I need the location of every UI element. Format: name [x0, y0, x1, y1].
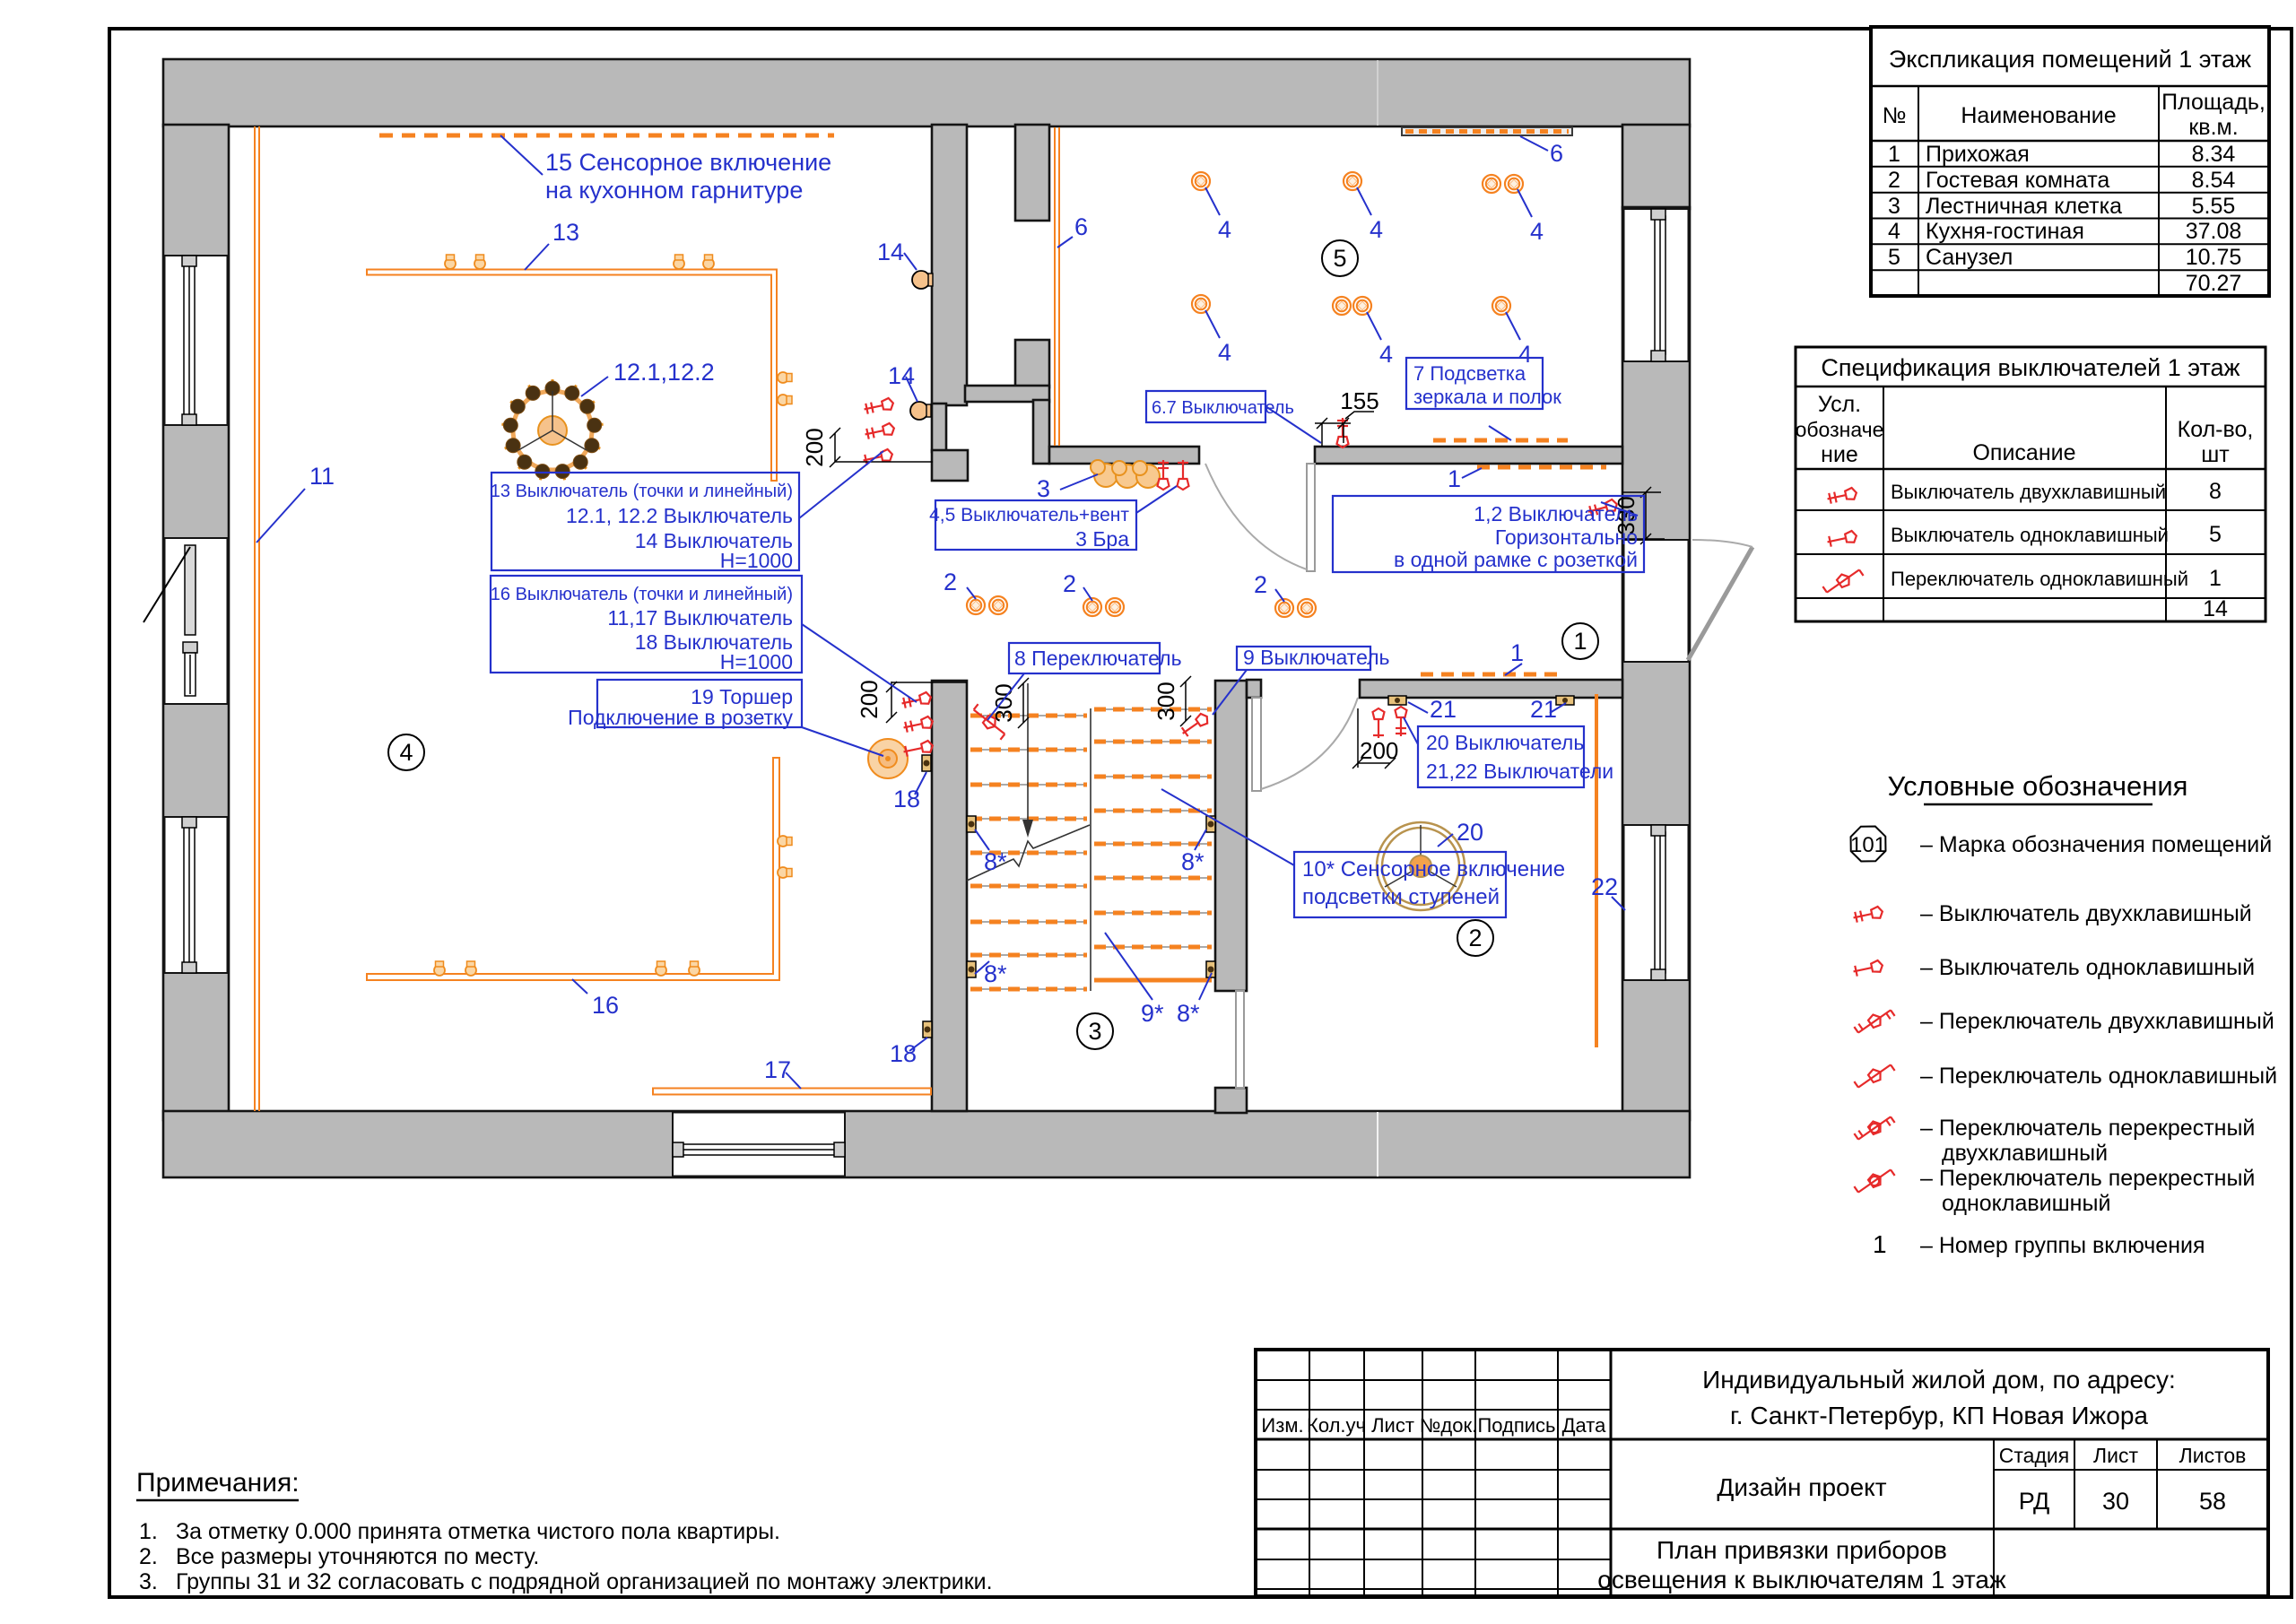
svg-text:3.: 3.: [139, 1569, 158, 1594]
svg-text:200: 200: [1360, 737, 1398, 764]
svg-text:101: 101: [1850, 833, 1886, 857]
svg-text:№: №: [1883, 103, 1907, 128]
svg-text:4: 4: [1370, 216, 1383, 243]
svg-text:17: 17: [764, 1056, 791, 1083]
svg-text:Санузел: Санузел: [1926, 245, 2013, 270]
svg-text:шт: шт: [2201, 442, 2230, 467]
svg-text:13: 13: [552, 219, 579, 246]
svg-text:1,2 Выключатель: 1,2 Выключатель: [1474, 502, 1638, 525]
svg-text:– Номер группы включения: – Номер группы включения: [1920, 1233, 2205, 1258]
svg-text:7 Подсветка: 7 Подсветка: [1413, 362, 1526, 385]
svg-text:2: 2: [944, 569, 957, 595]
svg-text:11,17 Выключатель: 11,17 Выключатель: [607, 606, 793, 630]
svg-text:12.1, 12.2 Выключатель: 12.1, 12.2 Выключатель: [566, 504, 793, 527]
svg-text:18: 18: [893, 786, 920, 812]
svg-text:21,22 Выключатели: 21,22 Выключатели: [1426, 760, 1613, 783]
svg-text:4: 4: [1530, 218, 1544, 245]
svg-text:70.27: 70.27: [2186, 271, 2242, 296]
svg-text:300: 300: [1152, 682, 1179, 720]
svg-text:Подключение в розетку: Подключение в розетку: [568, 706, 793, 729]
svg-text:– Переключатель перекрестный: – Переключатель перекрестный: [1920, 1116, 2255, 1141]
svg-text:2: 2: [1888, 168, 1900, 193]
svg-text:Кухня-гостиная: Кухня-гостиная: [1926, 219, 2084, 244]
svg-text:H=1000: H=1000: [720, 650, 793, 673]
svg-text:1: 1: [2209, 566, 2222, 591]
svg-text:9*: 9*: [1141, 1000, 1164, 1027]
svg-text:5.55: 5.55: [2192, 194, 2236, 219]
svg-text:Наименование: Наименование: [1961, 103, 2116, 128]
svg-text:на кухонном гарнитуре: на кухонном гарнитуре: [545, 177, 803, 204]
svg-text:2.: 2.: [139, 1544, 158, 1569]
svg-text:4: 4: [1218, 339, 1231, 366]
svg-text:Лист: Лист: [2093, 1444, 2138, 1467]
svg-text:18: 18: [890, 1040, 917, 1067]
svg-text:1: 1: [1888, 142, 1900, 167]
svg-text:– Переключатель перекрестный: – Переключатель перекрестный: [1920, 1166, 2255, 1191]
svg-text:8.34: 8.34: [2192, 142, 2236, 167]
svg-text:Экспликация помещений 1 этаж: Экспликация помещений 1 этаж: [1889, 46, 2251, 73]
svg-text:6: 6: [1074, 213, 1088, 240]
svg-text:– Переключатель одноклавишный: – Переключатель одноклавишный: [1920, 1064, 2277, 1089]
svg-text:8*: 8*: [1177, 1000, 1200, 1027]
svg-text:ние: ние: [1821, 442, 1858, 467]
svg-text:Описание: Описание: [1972, 440, 2075, 465]
svg-text:1: 1: [1448, 465, 1461, 492]
svg-text:Изм.: Изм.: [1261, 1414, 1303, 1437]
svg-text:20: 20: [1457, 819, 1483, 846]
svg-text:1: 1: [1510, 639, 1524, 666]
svg-text:№док.: №док.: [1420, 1414, 1477, 1437]
svg-text:1.: 1.: [139, 1519, 158, 1544]
svg-text:155: 155: [1340, 387, 1378, 414]
svg-text:зеркала и полок: зеркала и полок: [1413, 386, 1561, 408]
svg-text:3: 3: [1888, 194, 1900, 219]
svg-text:План привязки приборов: План привязки приборов: [1657, 1536, 1947, 1564]
svg-text:Спецификация выключателей 1 эт: Спецификация выключателей 1 этаж: [1821, 354, 2239, 381]
svg-text:14: 14: [877, 239, 904, 265]
svg-text:H=1000: H=1000: [720, 549, 793, 572]
svg-text:Горизонтально: Горизонтально: [1495, 525, 1638, 549]
svg-text:8*: 8*: [984, 960, 1007, 987]
svg-text:14: 14: [2203, 596, 2228, 621]
svg-text:4,5 Выключатель+вент: 4,5 Выключатель+вент: [929, 505, 1129, 525]
svg-text:– Марка обозначения помещений: – Марка обозначения помещений: [1920, 832, 2272, 857]
svg-text:1: 1: [1873, 1230, 1887, 1258]
svg-text:4: 4: [1888, 219, 1900, 244]
svg-text:8: 8: [2209, 479, 2222, 504]
svg-text:Индивидуальный жилой дом, по а: Индивидуальный жилой дом, по адресу:: [1702, 1366, 2176, 1394]
svg-text:2: 2: [1254, 571, 1267, 598]
svg-text:4: 4: [1218, 216, 1231, 243]
svg-text:Листов: Листов: [2179, 1444, 2247, 1467]
svg-text:10* Сенсорное включение: 10* Сенсорное включение: [1302, 857, 1565, 881]
svg-text:22: 22: [1591, 873, 1618, 900]
svg-text:Кол-во,: Кол-во,: [2178, 417, 2254, 442]
svg-text:За отметку 0.000 принята отмет: За отметку 0.000 принята отметка чистого…: [176, 1519, 780, 1544]
svg-text:8*: 8*: [984, 848, 1007, 875]
svg-text:20 Выключатель: 20 Выключатель: [1426, 731, 1584, 754]
svg-text:РД: РД: [2019, 1488, 2050, 1515]
svg-text:37.08: 37.08: [2186, 219, 2242, 244]
svg-text:Прихожая: Прихожая: [1926, 142, 2030, 167]
svg-text:одноклавишный: одноклавишный: [1942, 1191, 2110, 1216]
svg-text:10.75: 10.75: [2186, 245, 2242, 270]
svg-text:30: 30: [2102, 1488, 2129, 1515]
svg-text:– Выключатель двухклавишный: – Выключатель двухклавишный: [1920, 901, 2252, 926]
svg-text:3: 3: [1088, 1018, 1101, 1045]
svg-text:5: 5: [1333, 245, 1346, 272]
svg-text:Площадь,: Площадь,: [2161, 90, 2266, 115]
svg-text:6: 6: [1550, 140, 1563, 167]
svg-text:Условные обозначения: Условные обозначения: [1888, 770, 2188, 802]
svg-text:Группы 31 и 32 согласовать с п: Группы 31 и 32 согласовать с подрядной о…: [176, 1569, 993, 1594]
svg-text:5: 5: [2209, 522, 2222, 547]
svg-text:58: 58: [2199, 1488, 2226, 1515]
svg-text:2: 2: [1468, 925, 1482, 951]
svg-text:двухклавишный: двухклавишный: [1942, 1141, 2108, 1166]
svg-text:3: 3: [1037, 475, 1050, 502]
svg-text:200: 200: [801, 428, 828, 466]
svg-text:9 Выключатель: 9 Выключатель: [1243, 646, 1390, 669]
svg-text:300: 300: [990, 683, 1017, 722]
svg-text:Переключатель одноклавишный: Переключатель одноклавишный: [1891, 568, 2188, 590]
svg-text:11: 11: [309, 463, 335, 490]
svg-text:Стадия: Стадия: [1999, 1444, 2069, 1467]
svg-text:13 Выключатель (точки и линейн: 13 Выключатель (точки и линейный): [491, 482, 793, 501]
svg-text:Выключатель одноклавишный: Выключатель одноклавишный: [1891, 524, 2169, 546]
svg-text:Дата: Дата: [1562, 1414, 1606, 1437]
svg-text:16: 16: [592, 992, 619, 1019]
svg-text:Примечания:: Примечания:: [136, 1468, 300, 1498]
svg-text:подсветки ступеней: подсветки ступеней: [1302, 885, 1500, 909]
svg-text:16 Выключатель (точки и линей: 16 Выключатель (точки и линейный): [491, 585, 793, 604]
svg-text:Подпись: Подпись: [1477, 1414, 1555, 1437]
svg-text:5: 5: [1888, 245, 1900, 270]
svg-text:8*: 8*: [1181, 848, 1205, 875]
svg-text:21: 21: [1530, 696, 1557, 723]
svg-text:15 Сенсорное включение: 15 Сенсорное включение: [545, 149, 831, 176]
svg-text:обозначе: обозначе: [1796, 418, 1884, 441]
svg-text:Дизайн проект: Дизайн проект: [1717, 1473, 1886, 1501]
svg-text:Выключатель двухклавишный: Выключатель двухклавишный: [1891, 481, 2166, 503]
svg-text:в одной рамке с розеткой: в одной рамке с розеткой: [1394, 548, 1638, 571]
svg-text:1: 1: [1573, 628, 1587, 655]
svg-text:21: 21: [1430, 696, 1457, 723]
svg-text:кв.м.: кв.м.: [2188, 115, 2238, 140]
svg-text:г. Санкт-Петербур, КП Новая Иж: г. Санкт-Петербур, КП Новая Ижора: [1730, 1402, 2148, 1429]
svg-text:200: 200: [856, 680, 883, 718]
svg-text:Усл.: Усл.: [1818, 392, 1861, 417]
svg-text:12.1,12.2: 12.1,12.2: [613, 359, 715, 386]
svg-text:8.54: 8.54: [2192, 168, 2236, 193]
svg-text:6.7 Выключатель: 6.7 Выключатель: [1152, 398, 1294, 418]
svg-text:Гостевая комната: Гостевая комната: [1926, 168, 2109, 193]
svg-text:Все размеры уточняются по мест: Все размеры уточняются по месту.: [176, 1544, 539, 1569]
svg-text:освещения к выключателям 1 эта: освещения к выключателям 1 этаж: [1597, 1566, 2006, 1594]
svg-text:– Переключатель двухклавишный: – Переключатель двухклавишный: [1920, 1009, 2274, 1034]
svg-text:Кол.уч: Кол.уч: [1307, 1414, 1366, 1437]
svg-text:4: 4: [399, 739, 413, 766]
svg-text:Лист: Лист: [1371, 1414, 1414, 1437]
svg-text:3 Бра: 3 Бра: [1075, 527, 1129, 551]
svg-text:4: 4: [1379, 341, 1393, 368]
svg-text:8 Переключатель: 8 Переключатель: [1014, 647, 1182, 670]
svg-text:14: 14: [888, 362, 915, 389]
svg-text:– Выключатель одноклавишный: – Выключатель одноклавишный: [1920, 955, 2255, 980]
svg-text:Лестничная клетка: Лестничная клетка: [1926, 194, 2122, 219]
svg-text:2: 2: [1063, 570, 1076, 597]
